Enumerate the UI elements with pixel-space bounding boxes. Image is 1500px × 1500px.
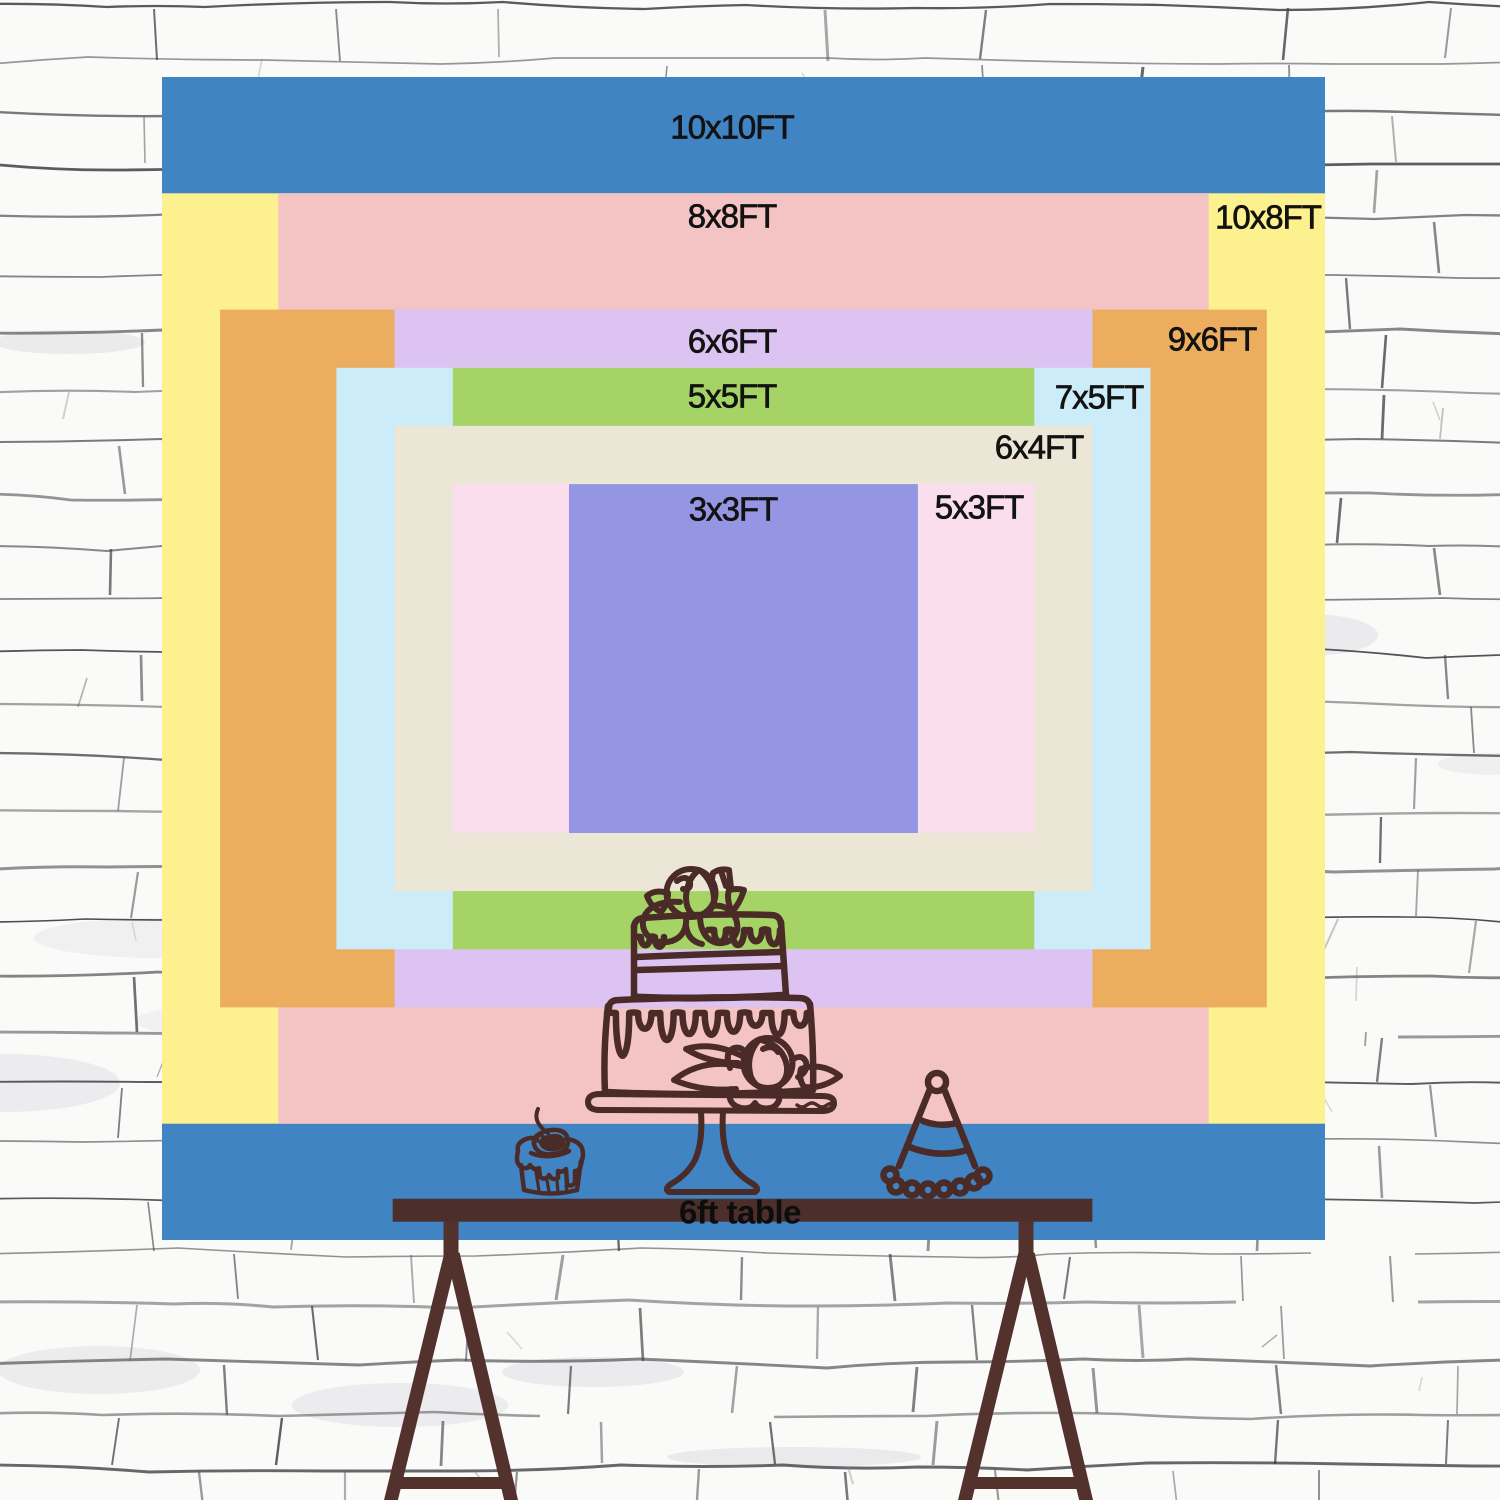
svg-text:3x3FT: 3x3FT: [689, 491, 778, 528]
svg-text:5x3FT: 5x3FT: [935, 489, 1024, 526]
svg-text:10x8FT: 10x8FT: [1215, 199, 1322, 236]
svg-text:7x5FT: 7x5FT: [1055, 379, 1144, 416]
svg-text:9x6FT: 9x6FT: [1168, 321, 1257, 358]
svg-text:10x10FT: 10x10FT: [670, 109, 794, 146]
svg-text:6x4FT: 6x4FT: [995, 429, 1084, 466]
svg-text:5x5FT: 5x5FT: [688, 378, 777, 415]
svg-text:6ft table: 6ft table: [679, 1194, 801, 1231]
svg-text:6x6FT: 6x6FT: [688, 323, 777, 360]
svg-text:8x8FT: 8x8FT: [688, 198, 777, 235]
